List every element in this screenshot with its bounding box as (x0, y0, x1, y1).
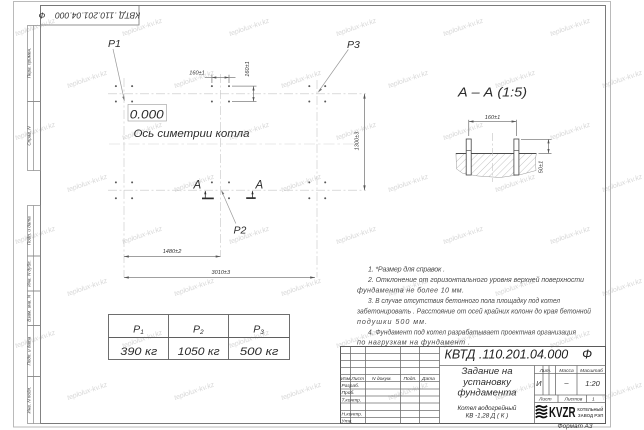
svg-text:И: И (536, 379, 542, 388)
svg-text:фундамента: фундамента (458, 387, 517, 398)
svg-text:установку: установку (462, 377, 512, 388)
svg-text:Взам. инв. N: Взам. инв. N (27, 294, 32, 321)
svg-text:1:20: 1:20 (585, 379, 600, 388)
svg-text:P1: P1 (108, 38, 121, 50)
svg-text:1: 1 (592, 397, 595, 403)
svg-text:1300±3: 1300±3 (355, 131, 361, 151)
svg-text:–: – (563, 378, 569, 387)
svg-text:N докум.: N докум. (372, 376, 392, 382)
svg-text:500 кг: 500 кг (240, 346, 279, 358)
svg-text:КОТЕЛЬНЫЙ: КОТЕЛЬНЫЙ (577, 405, 603, 412)
svg-text:Листов: Листов (564, 397, 583, 403)
svg-text:3. В случае отсутствия бетонн: 3. В случае отсутствия бетонного пола пл… (368, 297, 560, 305)
svg-text:1050 кг: 1050 кг (178, 346, 221, 358)
svg-text:390 кг: 390 кг (120, 346, 158, 358)
svg-text:подушки 500 мм.: подушки 500 мм. (357, 318, 427, 326)
svg-text:Лист: Лист (538, 397, 552, 403)
svg-text:фундамента не более 10 мм.: фундамента не более 10 мм. (357, 286, 464, 294)
svg-text:Дата: Дата (421, 376, 435, 382)
svg-text:P2: P2 (234, 225, 247, 237)
svg-text:Справ. N: Справ. N (27, 126, 32, 146)
svg-text:P3: P3 (347, 39, 360, 51)
svg-text:Изм.Лист: Изм.Лист (341, 376, 364, 382)
svg-text:Инв. N дубл.: Инв. N дубл. (27, 260, 32, 287)
svg-text:Подп. и дата: Подп. и дата (27, 216, 32, 245)
svg-text:Подп.: Подп. (404, 376, 417, 382)
svg-text:50±1: 50±1 (538, 161, 544, 173)
svg-text:забетонировать . Расстояние от: забетонировать . Расстояние от осей край… (356, 307, 591, 315)
svg-text:KVZR: KVZR (549, 404, 576, 421)
svg-text:1. *Размер для справок .: 1. *Размер для справок . (368, 265, 445, 273)
svg-text:А – А (1:5): А – А (1:5) (457, 85, 527, 100)
svg-text:Лит.: Лит. (539, 368, 551, 374)
svg-text:160±1: 160±1 (189, 71, 205, 77)
svg-text:Ось симетрии котла: Ось симетрии котла (134, 128, 250, 140)
svg-text:по нагрузкам на фундамент .: по нагрузкам на фундамент . (357, 338, 470, 346)
svg-text:А: А (193, 180, 202, 192)
svg-text:Т.контр.: Т.контр. (342, 397, 362, 403)
svg-text:0.000: 0.000 (130, 107, 164, 121)
svg-text:Задание на: Задание на (461, 366, 512, 377)
svg-text:А: А (255, 180, 264, 192)
svg-text:3010±3: 3010±3 (211, 270, 231, 276)
svg-text:Разраб.: Разраб. (342, 383, 360, 389)
svg-text:Перв. примен.: Перв. примен. (27, 48, 32, 79)
svg-text:КВ -1,28 Д ( К ): КВ -1,28 Д ( К ) (466, 413, 509, 420)
svg-text:Котел водогрейный: Котел водогрейный (457, 405, 516, 412)
svg-text:Проб.: Проб. (342, 390, 355, 396)
svg-text:Формат А3: Формат А3 (558, 423, 593, 430)
svg-text:ЗАВОД РЭП: ЗАВОД РЭП (578, 413, 603, 418)
svg-text:4. Фундамент под котел разраб: 4. Фундамент под котел разрабатывает про… (368, 328, 576, 336)
svg-text:КВТД .110.201.04.000 Ф: КВТД .110.201.04.000 Ф (445, 347, 593, 362)
svg-text:Масштаб: Масштаб (580, 368, 603, 374)
svg-text:Масса: Масса (559, 368, 574, 374)
svg-text:Утв.: Утв. (342, 419, 353, 425)
svg-text:160±1: 160±1 (245, 61, 251, 77)
svg-text:Инв. N подл.: Инв. N подл. (27, 387, 32, 414)
svg-text:Н.контр.: Н.контр. (342, 411, 363, 417)
svg-text:160±1: 160±1 (485, 115, 501, 121)
svg-text:1480±2: 1480±2 (163, 249, 183, 255)
svg-text:КВТД .110.201.04.000 Ф: КВТД .110.201.04.000 Ф (39, 11, 141, 21)
svg-text:2. Отклонение от горизонтальн: 2. Отклонение от горизонтального уровня … (367, 276, 584, 284)
svg-text:Подп. и дата: Подп. и дата (27, 336, 32, 365)
